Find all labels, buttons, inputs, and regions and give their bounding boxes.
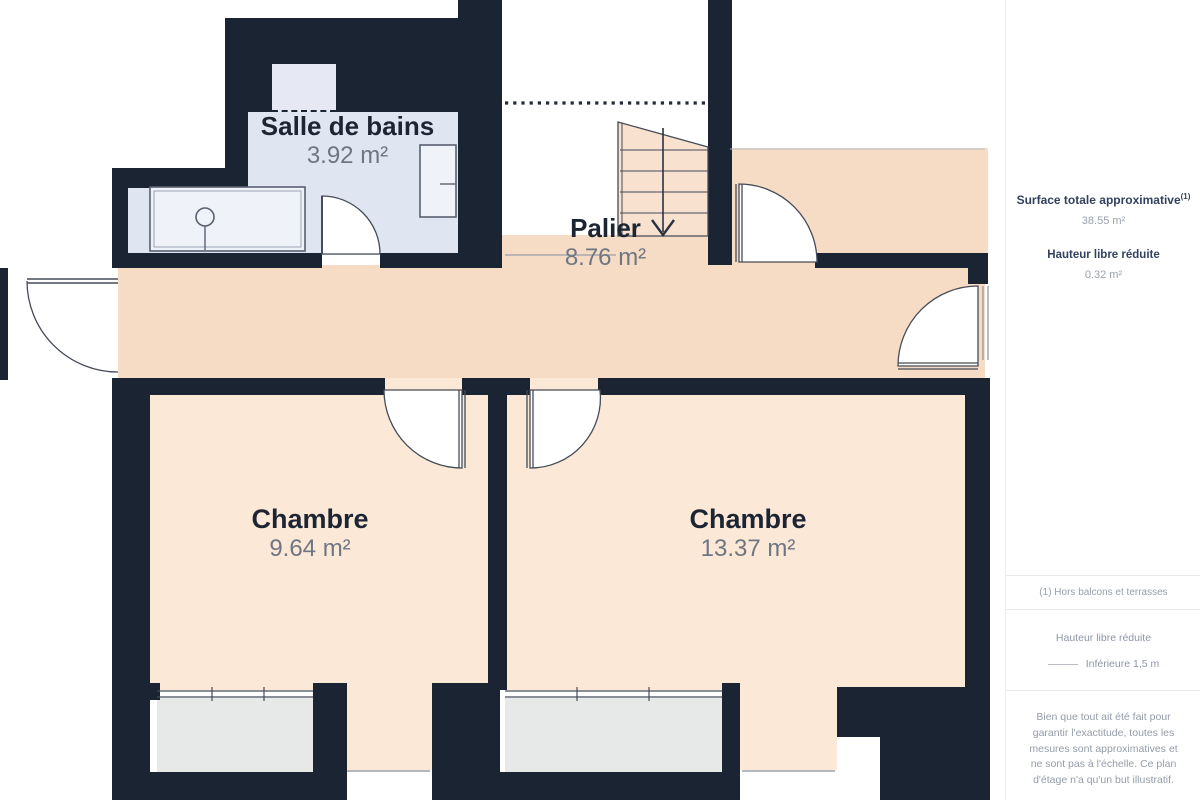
reduced-height-value: 0.32 m²	[1006, 269, 1200, 281]
room-area: 8.76 m²	[518, 244, 693, 272]
wall-bottom-right-step	[837, 687, 990, 737]
wall-right-stub	[968, 268, 988, 284]
floor-bedroom-left-extension	[347, 688, 432, 770]
room-area: 13.37 m²	[623, 535, 873, 563]
footnote-marker: (1)	[1181, 192, 1191, 201]
wall-bottom-under-window-right	[432, 772, 740, 800]
disclaimer-block: Bien que tout ait été fait pour garantir…	[1006, 700, 1200, 800]
wall-between-window-and-extension-right	[722, 683, 740, 800]
floor-bedroom-right-extension	[740, 688, 837, 770]
wall-bath-landing-divider	[458, 0, 502, 268]
wall-entry-stub	[0, 268, 8, 380]
wall-right-exterior	[965, 378, 990, 688]
surface-total-value: 38.55 m²	[1006, 215, 1200, 227]
wall-bathroom-bottom-right	[380, 253, 460, 268]
wall-left-exterior	[112, 378, 150, 775]
room-area: 9.64 m²	[185, 535, 435, 563]
bathroom-duct-notch	[272, 64, 336, 112]
wall-shower-left	[112, 188, 128, 258]
room-name: Chambre	[623, 504, 873, 535]
wall-corridor-bottom-left	[112, 378, 385, 395]
info-sidebar: Surface totale approximative(1) 38.55 m²…	[1005, 0, 1200, 800]
footnote: (1) Hors balcons et terrasses	[1006, 575, 1200, 610]
floor-corridor	[118, 265, 985, 378]
floor-landing-right	[730, 148, 988, 268]
wall-stairwell-right	[708, 0, 732, 265]
window-bay-left	[157, 698, 313, 772]
room-label-bathroom: Salle de bains 3.92 m²	[240, 112, 455, 169]
wall-between-window-and-extension-left	[313, 683, 347, 800]
wall-bottom-under-window-left	[112, 772, 347, 800]
room-label-bedroom-left: Chambre 9.64 m²	[185, 504, 435, 563]
room-label-bedroom-right: Chambre 13.37 m²	[623, 504, 873, 563]
window-bay-right	[505, 698, 722, 772]
wall-bedroom-divider	[488, 390, 507, 690]
surface-total-title: Surface totale approximative(1)	[1006, 192, 1200, 207]
wall-corridor-top-right	[815, 253, 988, 268]
floor-plan-page: Salle de bains 3.92 m² Palier 8.76 m² Ch…	[0, 0, 1200, 800]
disclaimer-text: Bien que tout ait été fait pour garantir…	[1026, 710, 1181, 789]
floor-bathroom	[127, 186, 458, 255]
legend-title: Hauteur libre réduite	[1006, 632, 1200, 644]
room-name: Palier	[518, 214, 693, 244]
wall-shower-top	[112, 168, 227, 188]
wall-corridor-bottom-right	[598, 378, 985, 395]
room-name: Chambre	[185, 504, 435, 535]
legend-line-swatch	[1048, 664, 1078, 665]
legend-item-label: Inférieure 1,5 m	[1086, 658, 1160, 670]
wall-bathroom-bottom-left	[112, 253, 322, 268]
door-entry	[27, 279, 118, 372]
legend-block: Hauteur libre réduite Inférieure 1,5 m	[1006, 608, 1200, 691]
room-label-landing: Palier 8.76 m²	[518, 214, 693, 271]
wall-bottom-right-corner	[880, 737, 990, 800]
reduced-height-title: Hauteur libre réduite	[1006, 249, 1200, 261]
totals-block: Surface totale approximative(1) 38.55 m²…	[1006, 192, 1200, 281]
wall-window-left-stub	[148, 683, 160, 700]
room-area: 3.92 m²	[240, 142, 455, 170]
room-name: Salle de bains	[240, 112, 455, 142]
